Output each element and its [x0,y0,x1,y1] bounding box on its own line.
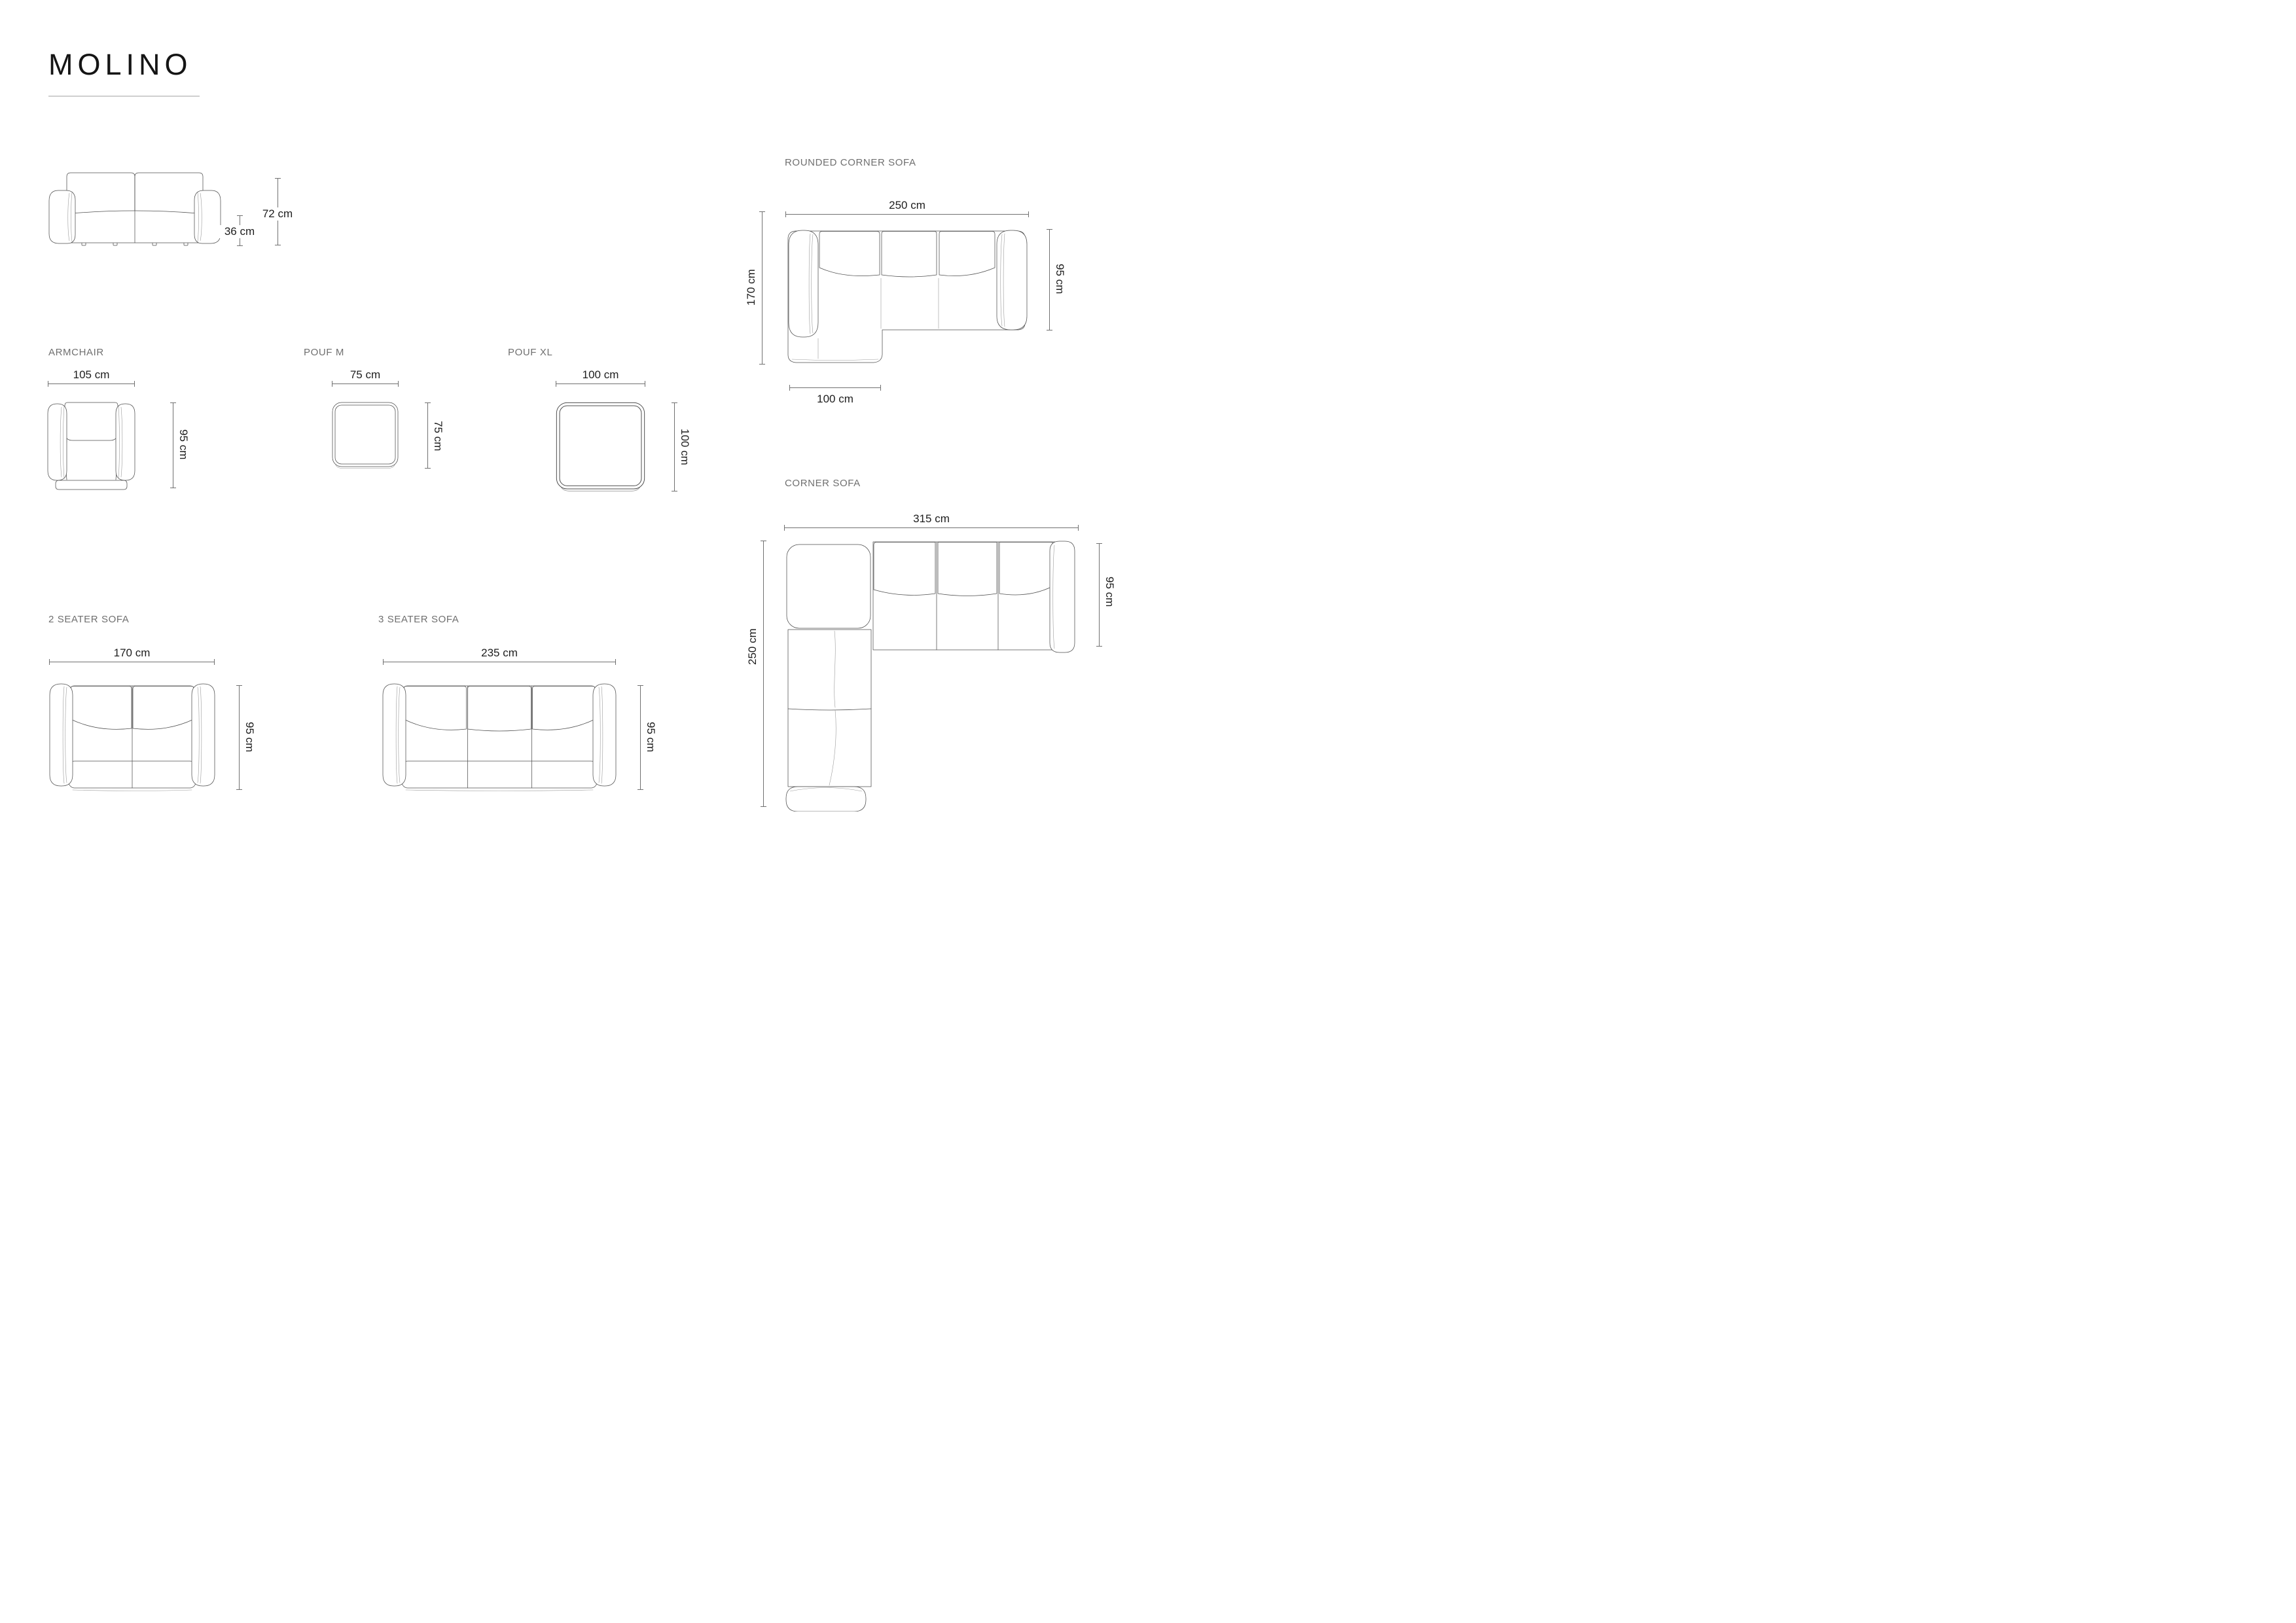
rounded-corner-sofa-label: ROUNDED CORNER SOFA [785,157,916,169]
armchair-depth-value: 95 cm [177,429,190,459]
pouf-xl-width-dim-line [556,383,645,384]
pouf-m-label: POUF M [304,347,344,359]
rounded-corner-width-dim-line [785,214,1029,215]
front-view-seat-height-value: 36 cm [210,225,269,238]
pouf-xl-drawing [556,402,645,491]
corner-depth-value: 95 cm [1103,577,1116,607]
rounded-corner-depth-dim-line [1049,229,1050,330]
2-seater-width-value: 170 cm [49,647,215,660]
corner-width-value: 315 cm [784,512,1079,526]
corner-sofa-drawing [785,541,1076,811]
rounded-corner-width-value: 250 cm [785,199,1029,212]
front-view-total-height-value: 72 cm [248,207,307,221]
pouf-xl-width-value: 100 cm [556,368,645,382]
armchair-width-dim-line [48,383,135,384]
corner-sofa-label: CORNER SOFA [785,478,861,490]
armchair-drawing [48,402,135,490]
collection-title: MOLINO [48,50,192,79]
spec-sheet: MOLINO 36 cm 72 cm ROUNDED CORNER SOFA 2… [0,0,1148,811]
3-seater-depth-value: 95 cm [644,722,657,752]
rounded-corner-depth-value: 95 cm [1053,264,1066,294]
corner-width-dim-line [784,527,1079,528]
pouf-xl-depth-dim-line [674,402,675,491]
rounded-corner-chaise-value: 100 cm [789,393,881,406]
3-seater-depth-dim-line [640,685,641,790]
3-seater-sofa-drawing [383,684,616,791]
pouf-m-drawing [332,402,399,469]
3-seater-width-value: 235 cm [383,647,616,660]
rounded-corner-side-value: 170 cm [745,269,758,306]
pouf-xl-depth-value: 100 cm [678,429,691,465]
corner-side-value: 250 cm [746,628,759,665]
2-seater-depth-value: 95 cm [243,722,256,752]
pouf-m-width-value: 75 cm [332,368,399,382]
pouf-m-depth-dim-line [427,402,428,469]
2-seater-width-dim-line [49,662,215,662]
2-seater-depth-dim-line [239,685,240,790]
armchair-width-value: 105 cm [48,368,135,382]
armchair-depth-dim-line [173,402,173,488]
pouf-m-width-dim-line [332,383,399,384]
corner-side-dim-line [763,541,764,807]
rounded-corner-sofa-drawing [785,229,1029,366]
title-underline [48,96,200,97]
2-seater-sofa-drawing [50,684,215,791]
armchair-label: ARMCHAIR [48,347,104,359]
3-seater-width-dim-line [383,662,616,662]
rounded-corner-side-dim-line [762,211,762,365]
pouf-m-depth-value: 75 cm [431,421,444,451]
pouf-xl-label: POUF XL [508,347,552,359]
corner-depth-dim-line [1099,543,1100,647]
rounded-corner-chaise-dim-line [789,387,881,388]
2-seater-label: 2 SEATER SOFA [48,614,129,626]
3-seater-label: 3 SEATER SOFA [378,614,459,626]
front-view-sofa-drawing [49,172,221,248]
